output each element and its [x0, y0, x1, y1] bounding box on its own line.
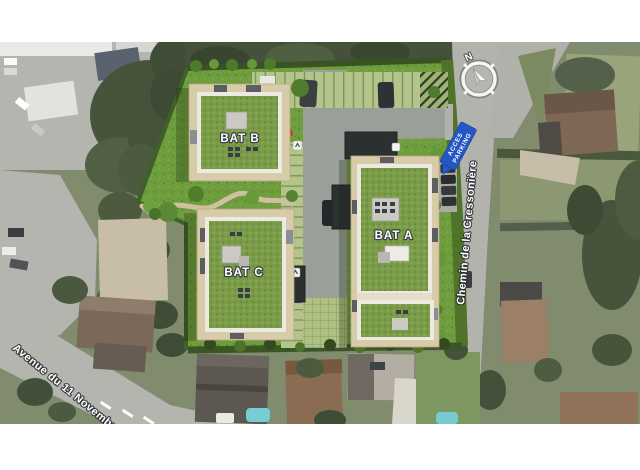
building-roof: [24, 81, 78, 122]
car: [216, 413, 234, 423]
roof-structure: [222, 246, 241, 263]
house: [536, 90, 618, 157]
building-bat-c: BAT C: [197, 209, 294, 340]
yard: [98, 218, 168, 302]
car: [378, 82, 395, 109]
aerial-map: BAT B BAT C: [0, 0, 640, 470]
roof-structure: [226, 112, 247, 129]
site-plan: BAT B BAT C: [137, 58, 462, 353]
building-bat-a: BAT A: [351, 156, 439, 347]
car: [8, 228, 24, 237]
label-bat-c: BAT C: [224, 267, 263, 279]
roof-structure: [392, 318, 408, 330]
swimming-pool: [246, 408, 270, 422]
label-bat-b: BAT B: [220, 133, 259, 145]
swimming-pool: [436, 412, 458, 424]
car: [370, 362, 385, 370]
car: [2, 247, 16, 255]
car: [4, 68, 17, 75]
site-plan-figure: BAT B BAT C: [0, 0, 640, 470]
car: [4, 58, 17, 65]
building-bat-b: BAT B: [189, 84, 290, 181]
house: [500, 282, 549, 363]
house: [560, 392, 638, 424]
label-bat-a: BAT A: [375, 230, 414, 242]
